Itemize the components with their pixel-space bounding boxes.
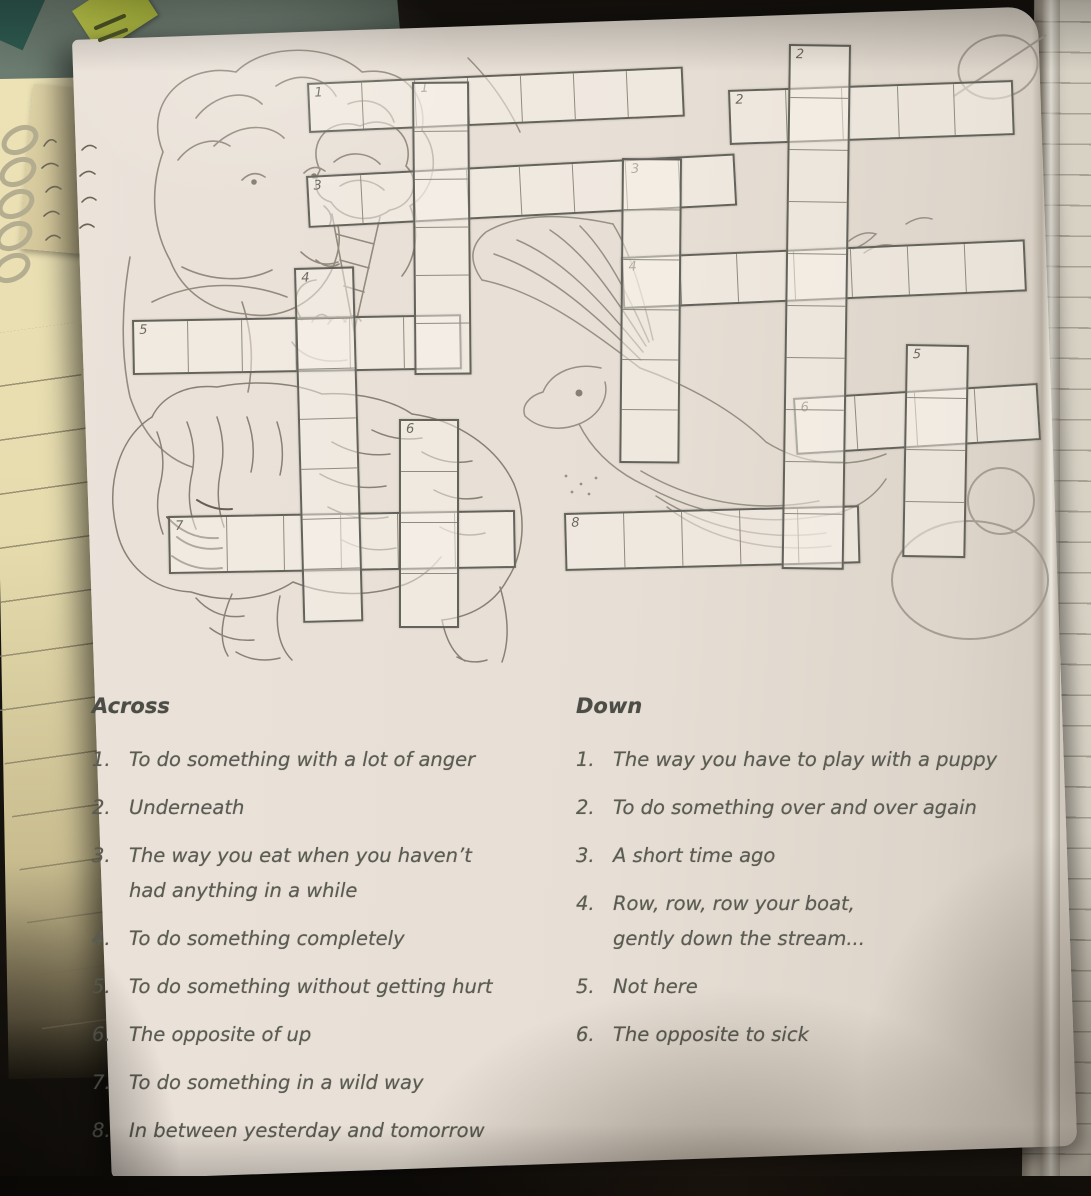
clue-item: 8.In between yesterday and tomorrow	[92, 1113, 572, 1148]
crossword-cell	[362, 80, 417, 128]
crossword-cell	[227, 516, 285, 571]
down-clue-list: 1.The way you have to play with a puppy2…	[576, 742, 1081, 1052]
crossword-cell	[467, 167, 522, 218]
crossword-cell	[416, 324, 469, 372]
crossword-run-down-2: 2	[782, 44, 851, 570]
clue-text: To do something without getting hurt	[129, 969, 492, 1004]
clues-down-section: Down 1.The way you have to play with a p…	[576, 694, 1081, 1065]
clue-number: 2.	[576, 790, 613, 825]
clue-text: The opposite of up	[129, 1017, 311, 1052]
crossword-cell	[401, 523, 457, 574]
crossword-cell	[908, 244, 967, 294]
crossword-cell	[361, 172, 416, 223]
crossword-cell	[301, 468, 358, 519]
crossword-cell	[415, 228, 468, 276]
clue-number: 6.	[576, 1017, 613, 1052]
clue-text: Not here	[613, 969, 698, 1004]
crossword-run-down-4: 4	[294, 266, 363, 622]
clue-text: The way you have to play with a puppy	[613, 742, 997, 777]
crossword-cell	[622, 360, 678, 410]
crossword-run-down-3	[619, 158, 682, 464]
crossword-run-down-5: 5	[902, 344, 969, 558]
clue-number: 3.	[576, 838, 613, 873]
crossword-cell	[300, 418, 357, 469]
clue-number: 5.	[92, 969, 129, 1004]
crossword-cell: 2	[790, 46, 849, 99]
cell-number: 5	[913, 347, 922, 362]
down-heading: Down	[576, 694, 1081, 718]
table-edge	[0, 1176, 1091, 1196]
crossword-cell: 6	[401, 421, 457, 472]
crossword-cell	[455, 512, 513, 567]
crossword-cell	[627, 69, 682, 117]
crossword-cell	[842, 86, 900, 139]
clue-text: The opposite to sick	[613, 1017, 809, 1052]
crossword-cell	[622, 310, 678, 360]
clue-text: Row, row, row your boat,gently down the …	[613, 886, 865, 956]
crossword-cell	[414, 132, 467, 180]
clue-item: 6.The opposite of up	[92, 1017, 572, 1052]
crossword-cell	[788, 202, 847, 255]
crossword-cell	[299, 368, 356, 419]
clue-text: A short time ago	[613, 838, 775, 873]
crossword-cell	[416, 276, 469, 324]
crossword-cell	[975, 385, 1038, 442]
cell-number: 7	[175, 519, 184, 534]
clue-text: To do something with a lot of anger	[129, 742, 475, 777]
cell-number: 8	[571, 516, 580, 531]
clue-item: 5.Not here	[576, 969, 1081, 1004]
clue-item: 7.To do something in a wild way	[92, 1065, 572, 1100]
crossword-cell	[784, 514, 843, 567]
cell-number: 5	[139, 323, 148, 338]
crossword-cell	[624, 512, 683, 567]
crossword-cell	[682, 510, 741, 565]
crossword-cell	[898, 84, 956, 137]
clue-item: 3.A short time ago	[576, 838, 1081, 873]
crossword-cell: 3	[308, 175, 363, 226]
clue-number: 3.	[92, 838, 129, 908]
clue-text: To do something completely	[129, 921, 405, 956]
crossword-run-down-1	[412, 82, 472, 375]
clue-text: To do something over and over again	[613, 790, 977, 825]
crossword-cell	[623, 260, 679, 310]
crossword-cell	[784, 462, 843, 515]
crossword-cell	[304, 568, 361, 619]
cell-number: 2	[796, 47, 804, 62]
clue-number: 1.	[92, 742, 129, 777]
crossword-cell	[520, 164, 575, 215]
crossword-cell	[851, 246, 910, 296]
crossword-cell	[954, 82, 1012, 135]
crossword-cell	[415, 180, 468, 228]
clue-number: 5.	[576, 969, 613, 1004]
crossword-cell	[188, 320, 243, 372]
crossword-cell	[904, 502, 964, 555]
crossword-cell	[789, 150, 848, 203]
clue-text: The way you eat when you haven’thad anyt…	[129, 838, 472, 908]
clues-across-section: Across 1.To do something with a lot of a…	[92, 694, 572, 1161]
crossword-cell	[303, 518, 360, 569]
crossword-cell	[786, 358, 845, 411]
cell-number: 4	[301, 271, 310, 286]
clue-number: 8.	[92, 1113, 129, 1148]
clue-item: 4.Row, row, row your boat,gently down th…	[576, 886, 1081, 956]
clue-number: 1.	[576, 742, 613, 777]
photo-of-crossword-worksheet: 11233456782456 Across 1.To do something …	[0, 0, 1091, 1196]
crossword-cell: 8	[566, 513, 625, 568]
crossword-cell	[401, 472, 457, 523]
clue-text: Underneath	[129, 790, 244, 825]
crossword-cell	[906, 398, 966, 451]
crossword-cell: 7	[170, 517, 228, 572]
crossword-cell	[790, 98, 849, 151]
cell-number: 6	[406, 422, 414, 437]
cell-number: 2	[735, 92, 744, 107]
across-heading: Across	[92, 694, 572, 718]
crossword-cell	[787, 306, 846, 359]
clue-number: 4.	[92, 921, 129, 956]
clue-number: 7.	[92, 1065, 129, 1100]
across-clue-list: 1.To do something with a lot of anger2.U…	[92, 742, 572, 1148]
crossword-cell	[624, 160, 680, 210]
cell-number: 1	[314, 85, 323, 100]
crossword-cell: 5	[907, 346, 967, 399]
crossword-cell	[621, 410, 677, 460]
clue-item: 3.The way you eat when you haven’thad an…	[92, 838, 572, 908]
crossword-cell	[787, 254, 846, 307]
crossword-cell	[468, 76, 523, 124]
crossword-cell: 2	[730, 90, 788, 143]
crossword-cell	[679, 156, 734, 207]
crossword-cell	[297, 318, 354, 369]
crossword-cell: 1	[309, 83, 364, 131]
clue-text: In between yesterday and tomorrow	[129, 1113, 485, 1148]
crossword-cell	[350, 317, 405, 369]
crossword-cell	[680, 254, 739, 304]
clue-item: 4.To do something completely	[92, 921, 572, 956]
crossword-cell: 4	[296, 268, 353, 319]
crossword-cell	[785, 410, 844, 463]
cell-number: 3	[313, 178, 322, 193]
clue-number: 6.	[92, 1017, 129, 1052]
clue-item: 5.To do something without getting hurt	[92, 969, 572, 1004]
crossword-run-across-2: 2	[728, 80, 1015, 145]
crossword-cell	[905, 450, 965, 503]
clue-item: 2.To do something over and over again	[576, 790, 1081, 825]
crossword-cell	[965, 242, 1024, 292]
clue-item: 1.The way you have to play with a puppy	[576, 742, 1081, 777]
crossword-run-across-1: 11	[307, 67, 685, 133]
crossword-cell	[574, 71, 629, 119]
clue-item: 1.To do something with a lot of anger	[92, 742, 572, 777]
clue-item: 6.The opposite to sick	[576, 1017, 1081, 1052]
crossword-run-down-6: 6	[399, 419, 459, 628]
clue-number: 4.	[576, 886, 613, 956]
crossword-cell	[414, 84, 467, 132]
crossword-cell: 5	[134, 321, 189, 373]
clue-number: 2.	[92, 790, 129, 825]
crossword-cell	[521, 73, 576, 121]
clue-text: To do something in a wild way	[129, 1065, 424, 1100]
crossword-cell	[401, 574, 457, 625]
crossword-cell	[573, 161, 628, 212]
crossword-cell	[242, 319, 297, 371]
clue-item: 2.Underneath	[92, 790, 572, 825]
crossword-cell	[623, 210, 679, 260]
